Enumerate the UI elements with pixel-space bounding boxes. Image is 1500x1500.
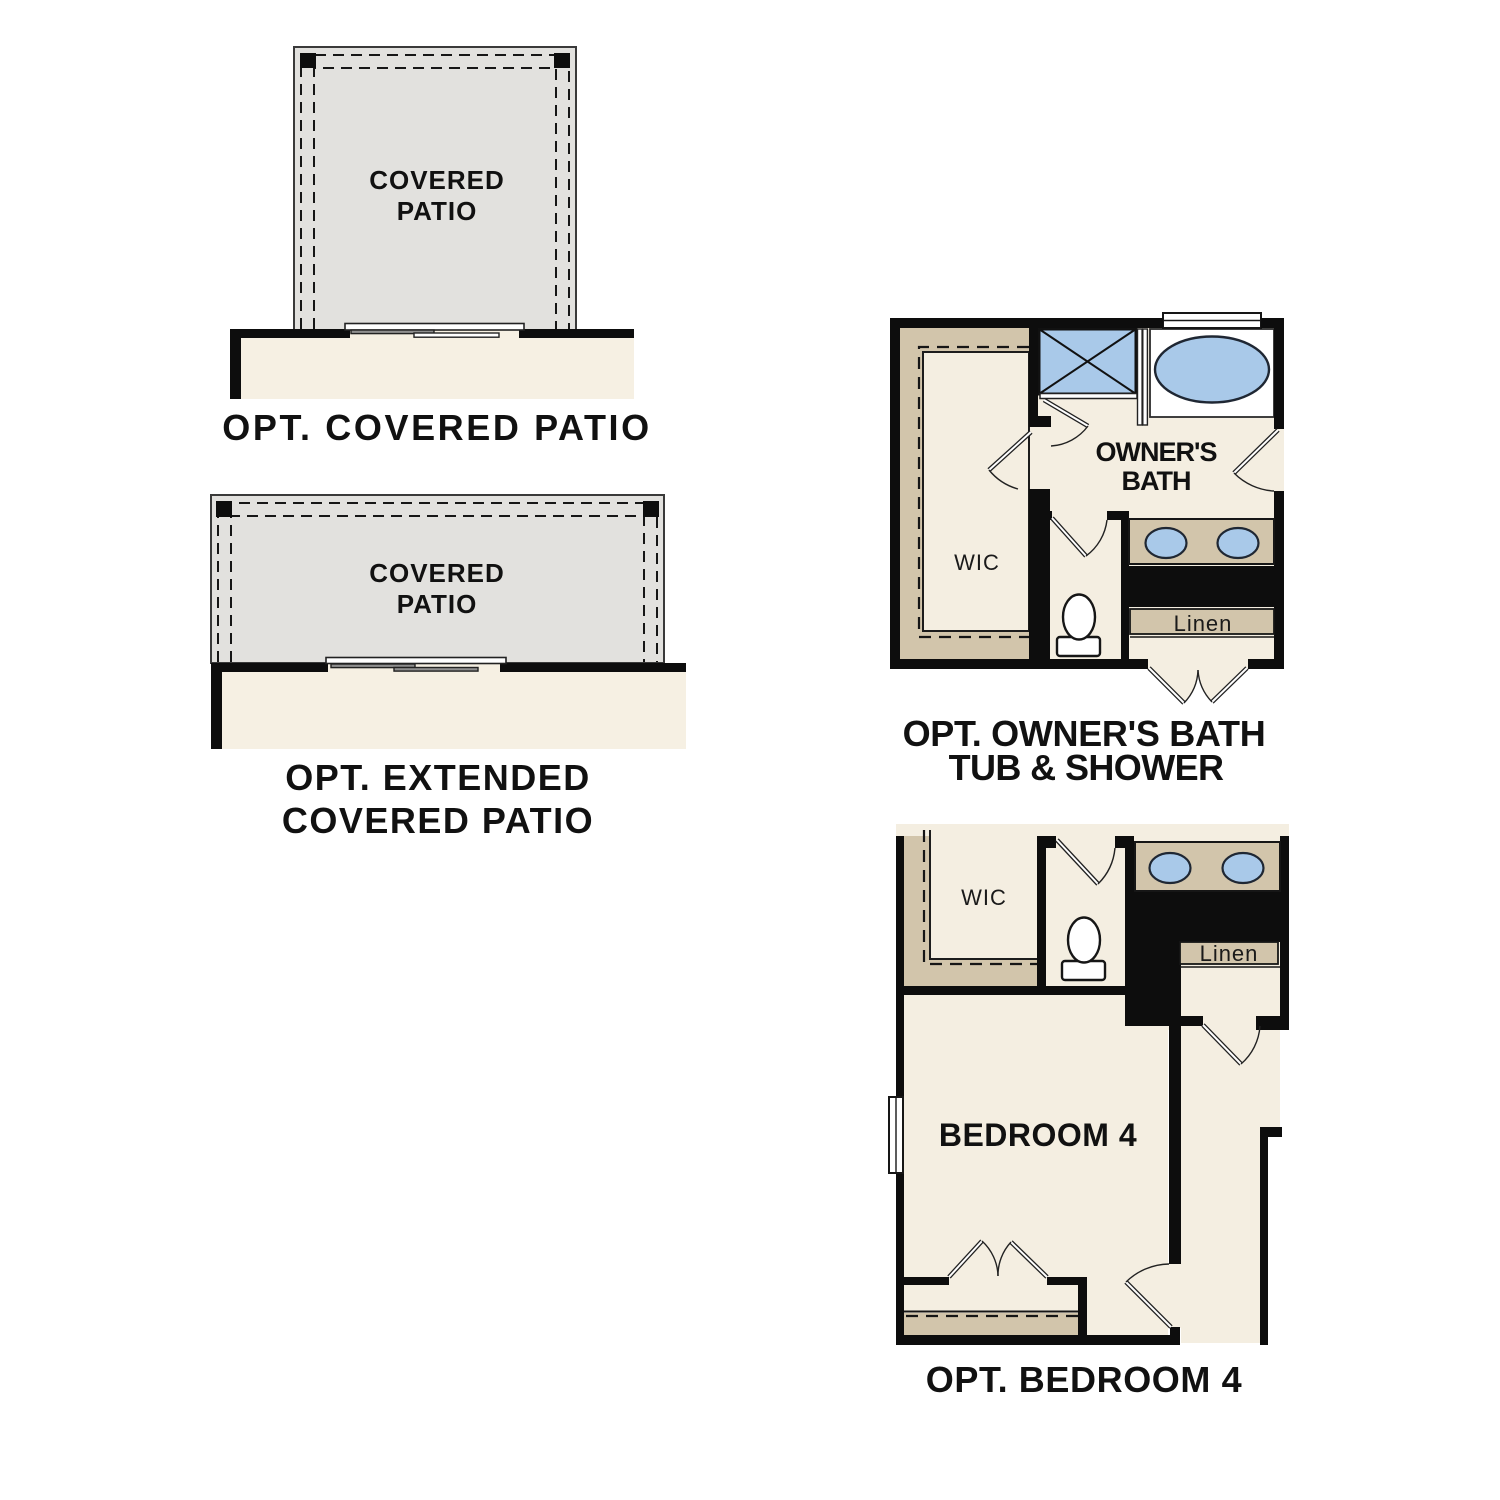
svg-text:COVERED: COVERED xyxy=(369,165,505,195)
svg-text:Linen: Linen xyxy=(1200,941,1259,966)
svg-text:OWNER'S: OWNER'S xyxy=(1096,437,1217,467)
svg-text:OPT. COVERED PATIO: OPT. COVERED PATIO xyxy=(222,407,652,448)
svg-text:COVERED PATIO: COVERED PATIO xyxy=(282,800,594,841)
svg-text:PATIO: PATIO xyxy=(397,589,478,619)
svg-text:BATH: BATH xyxy=(1122,466,1191,496)
svg-text:WIC: WIC xyxy=(954,550,1000,575)
svg-text:Linen: Linen xyxy=(1174,611,1233,636)
svg-text:OPT. EXTENDED: OPT. EXTENDED xyxy=(285,757,591,798)
svg-text:PATIO: PATIO xyxy=(397,196,478,226)
svg-text:TUB & SHOWER: TUB & SHOWER xyxy=(949,747,1224,788)
svg-text:WIC: WIC xyxy=(961,885,1007,910)
svg-text:COVERED: COVERED xyxy=(369,558,505,588)
svg-text:BEDROOM 4: BEDROOM 4 xyxy=(939,1117,1137,1153)
svg-text:OPT. BEDROOM 4: OPT. BEDROOM 4 xyxy=(926,1359,1242,1400)
